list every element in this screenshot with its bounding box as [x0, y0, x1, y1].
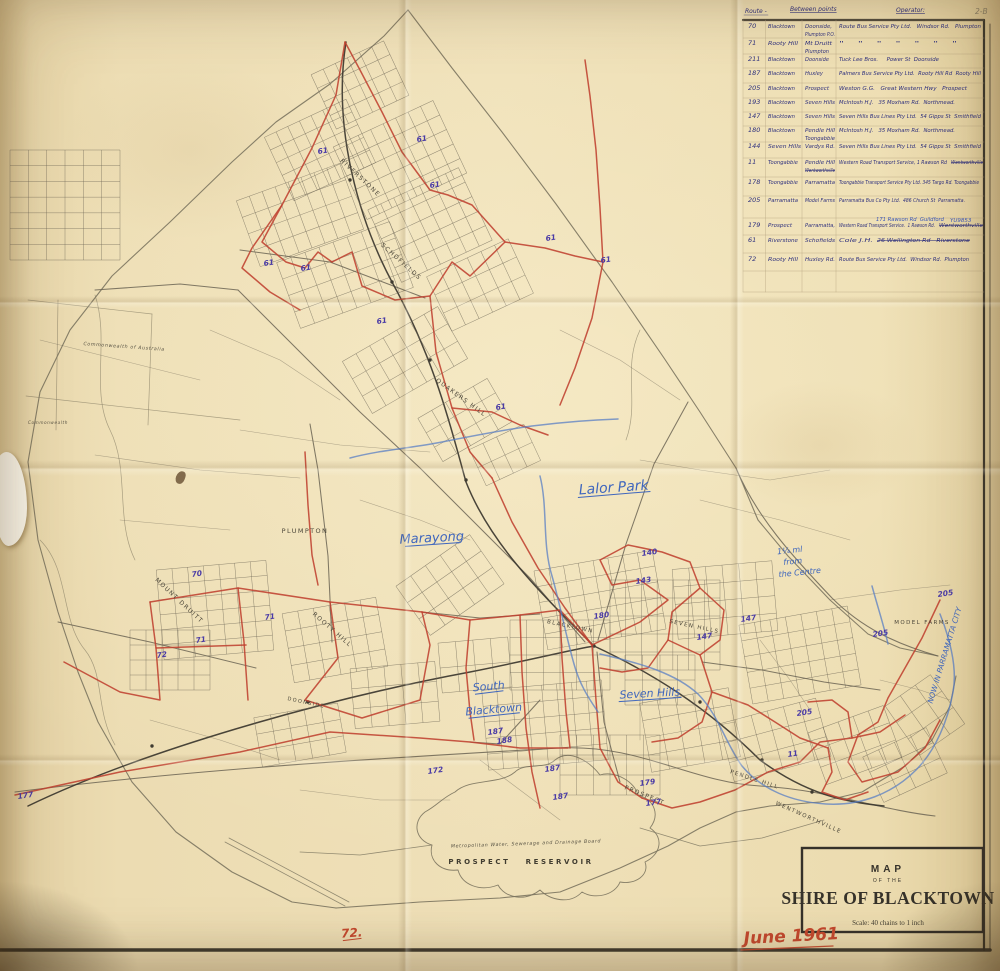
railway-station-dot [150, 744, 153, 747]
street-line [355, 721, 440, 728]
street-line [433, 101, 467, 174]
street-line [411, 576, 445, 625]
map-line [640, 820, 824, 846]
route-to-cell: Seven Hills [805, 114, 835, 120]
route-to-cell: Prospect [805, 86, 830, 92]
route-number-text: 11 [787, 749, 799, 759]
route-number-text: 61 [300, 263, 312, 273]
map-line [300, 790, 450, 800]
street-line [418, 418, 443, 461]
route-to-cell: Model Farms [805, 198, 835, 204]
route-number-mark: 11 [787, 749, 799, 759]
route-to-cell: Doonside, [805, 24, 832, 30]
street-line [163, 635, 273, 645]
route-number-mark: 188 [496, 735, 513, 746]
street-line [458, 168, 492, 241]
map-line [262, 42, 345, 268]
street-grid [396, 535, 504, 636]
street-line [162, 620, 272, 630]
street-line [744, 638, 852, 657]
street-line [425, 566, 459, 615]
street-line [301, 287, 414, 328]
handwritten-label-lalor-park: Lalor Park [577, 477, 651, 498]
street-grid [739, 606, 861, 704]
route-to-cell: Doonside [805, 57, 830, 63]
route-from-cell: Blacktown [768, 71, 795, 77]
map-line [95, 455, 300, 478]
route-number-text: 177 [17, 790, 35, 801]
street-line [350, 669, 355, 729]
route-number-text: 180 [593, 610, 610, 621]
street-line [926, 728, 947, 773]
street-line [407, 551, 481, 603]
street-line [372, 358, 467, 413]
handwritten-label-red-72: 72. [341, 925, 363, 940]
street-line [333, 242, 357, 308]
street-line [678, 631, 778, 640]
route-to-cell: Parramatta, [805, 223, 835, 229]
route-number-mark: 61 [300, 263, 312, 273]
street-line [335, 63, 360, 117]
handwritten-label-text: Lalor Park [578, 478, 650, 499]
route-number-cell: 147 [748, 112, 761, 120]
handwritten-label-centre-note-3: the Centre [778, 566, 821, 579]
railway-station-dot [464, 478, 467, 481]
street-line [418, 663, 423, 723]
street-line [262, 192, 286, 258]
handwritten-label-text: 1¼ ml [777, 545, 804, 557]
map-line [95, 284, 238, 290]
street-line [868, 711, 887, 763]
street-line [360, 600, 372, 669]
street-line [342, 362, 372, 414]
street-line [640, 703, 652, 772]
map-label-model-farms: MODEL FARMS [894, 620, 949, 626]
map-line [28, 10, 408, 908]
route-number-cell: 179 [748, 221, 760, 229]
street-line [314, 173, 338, 239]
route-to-cell: Schofields [805, 238, 835, 244]
street-line [260, 229, 363, 267]
route-operator-cell: Western Road Transport Service, 1 Rawson… [839, 160, 947, 166]
street-line [433, 180, 467, 253]
street-line [420, 186, 454, 259]
street-line [327, 168, 351, 234]
route-from-cell: Rooty Hill [768, 41, 799, 47]
map-line [598, 402, 688, 640]
route-number-mark: 70 [191, 569, 203, 579]
route-to-cell-2: Toongabbie [805, 136, 835, 142]
street-line [883, 705, 902, 757]
street-grid [482, 680, 609, 770]
route-number-mark: 61 [545, 233, 557, 243]
street-line [287, 712, 296, 761]
map-line [210, 330, 340, 400]
street-line [443, 422, 512, 462]
street-line [481, 251, 506, 305]
map-line [560, 330, 680, 400]
route-operator-cell: " " " " " " " [839, 41, 958, 47]
street-line [304, 709, 313, 758]
route-to-cell: Pendle Hill [805, 128, 836, 134]
street-line [401, 664, 406, 724]
route-number-cell: 205 [748, 84, 760, 92]
street-line [586, 681, 593, 761]
map-label-plumpton: PLUMPTON [282, 527, 329, 535]
route-number-mark: 72 [156, 650, 168, 660]
title-scale: Scale: 40 chains to 1 inch [852, 919, 924, 927]
map-line [120, 520, 230, 530]
street-line [430, 584, 504, 636]
route-number-mark: 61 [600, 255, 612, 265]
table-header-operator: Operator: [896, 7, 925, 14]
route-from-cell: Prospect [768, 223, 793, 229]
street-line [396, 118, 430, 191]
street-line [510, 431, 527, 467]
street-line [277, 263, 301, 329]
street-line [753, 685, 861, 704]
route-number-mark: 172 [427, 765, 444, 776]
handwritten-label-text: from [783, 556, 803, 567]
street-line [816, 612, 830, 691]
route-to-cell: Mt Druitt [805, 41, 833, 47]
route-number-cell: 211 [748, 55, 760, 63]
route-number-mark: 61 [376, 316, 388, 326]
route-operator-cell: Route Bus Service Pty Ltd. Windsor Rd. P… [839, 24, 981, 30]
map-label-commonwealth-2: Commonwealth [28, 420, 68, 425]
route-to-cell: Pendle Hill [805, 160, 836, 166]
route-from-cell: Riverstone [768, 238, 799, 244]
street-line [542, 685, 549, 765]
route-number-text: 147 [696, 631, 714, 642]
route-from-cell: Toongabbie [768, 180, 799, 186]
street-line [236, 163, 339, 201]
route-number-text: 61 [317, 146, 329, 156]
map-label-prospect-reservoir: PROSPECT RESERVOIR [448, 858, 593, 866]
route-operator-cell: Toongabbie Transport Service Pty Ltd. 34… [839, 180, 979, 186]
street-line [276, 125, 358, 163]
route-number-text: 71 [264, 612, 276, 622]
street-line [657, 700, 669, 769]
route-number-mark: 147 [696, 631, 714, 642]
route-operator-cell: Route Bus Service Pty Ltd. Windsor Rd. P… [839, 257, 969, 263]
street-line [623, 555, 637, 634]
street-line [801, 614, 815, 693]
street-line [384, 666, 389, 726]
scanned-map-sheet: Route -Between pointsOperator:70Blacktow… [0, 0, 1000, 971]
route-number-text: 61 [495, 402, 507, 412]
title-main: SHIRE OF BLACKTOWN [781, 888, 994, 908]
route-number-mark: 61 [429, 180, 441, 190]
map-line [848, 600, 940, 782]
map-line [229, 838, 349, 902]
map-line [736, 468, 938, 656]
route-number-mark: 205 [937, 588, 954, 599]
map-line [600, 614, 954, 804]
handwritten-label-seven-hills-hw: Seven Hills [618, 685, 682, 701]
street-line [440, 270, 465, 324]
map-line [342, 42, 594, 646]
street-line [277, 222, 390, 263]
map-line [430, 296, 492, 478]
street-line [455, 545, 489, 594]
street-line [356, 354, 386, 406]
route-from-cell: Blacktown [768, 100, 795, 106]
street-line [298, 611, 310, 680]
street-line [370, 346, 400, 398]
table-header-route: Route - [745, 8, 767, 15]
street-line [368, 168, 459, 210]
route-number-cell: 205 [748, 196, 760, 204]
route-number-mark: 180 [593, 610, 610, 621]
street-line [512, 688, 519, 768]
route-from-cell: Rooty Hill [768, 257, 799, 263]
route-from-cell: Blacktown [768, 114, 795, 120]
route-to-cell-2: Plumpton P.O. [805, 32, 835, 38]
street-line [350, 661, 435, 668]
route-operator-cell: Parramatta Bus Co Pty Ltd. 486 Church St… [839, 198, 965, 204]
map-line [305, 452, 318, 585]
route-number-text: 172 [427, 765, 444, 776]
street-line [375, 182, 466, 224]
map-label-commonwealth: Commonwealth of Australia [83, 341, 165, 353]
handwritten-label-centre-note-2: from [783, 556, 803, 567]
handwritten-label-text: South [472, 679, 505, 695]
route-number-text: 71 [195, 635, 207, 645]
route-from-cell: Parramatta [768, 198, 798, 204]
route-number-cell: 193 [748, 98, 760, 106]
route-number-cell: 180 [748, 126, 760, 134]
route-operator-cell: Seven Hills Bus Lines Pty Ltd. 54 Gipps … [839, 114, 981, 120]
route-to-cell-2: Wentworthville [805, 168, 835, 174]
street-line [601, 680, 608, 760]
street-line [319, 247, 343, 313]
map-canvas: Route -Between pointsOperator:70Blacktow… [0, 0, 1000, 971]
route-operator-struck: 26 Wellington Rd Riverstone [877, 238, 970, 244]
street-line [271, 715, 280, 764]
route-operator-cell: McIntosh H.J. 35 Moxham Rd. Northmead. [839, 128, 955, 134]
table-header-between: Between points [790, 6, 837, 13]
railway-station-dot [698, 700, 701, 703]
map-line [417, 755, 659, 899]
street-line [383, 338, 413, 390]
map-label-wentworthville: WENTWORTHVILLE [774, 801, 842, 836]
route-to-cell: Huxley Rd. [805, 257, 835, 263]
street-line [742, 622, 850, 641]
street-line [438, 307, 468, 359]
street-line [785, 617, 799, 696]
street-grid [427, 239, 534, 331]
street-grid [333, 101, 467, 220]
route-number-text: 72 [156, 650, 168, 660]
map-label-text: PLUMPTON [282, 527, 329, 535]
route-to-cell: Huxley [805, 71, 824, 77]
map-label-text: PENDLE HILL [729, 769, 779, 790]
sheet-corner-note: 2-B [975, 7, 988, 16]
map-label-text: Metropolitan Water, Sewerage and Drainag… [451, 838, 602, 849]
street-line [381, 197, 472, 239]
street-grid [156, 560, 273, 659]
map-label-text: Commonwealth [28, 420, 68, 425]
route-operator-cell: Weston G.G. Great Western Hwy Prospect [839, 86, 968, 92]
street-line [885, 706, 919, 755]
route-operator-cell: McIntosh H.J. 35 Moxham Rd. Northmead. [839, 100, 955, 106]
street-grid [277, 222, 414, 329]
street-grid [254, 703, 346, 767]
map-line [830, 585, 950, 600]
street-line [593, 561, 607, 640]
route-operator-cell: Seven Hills Bus Lines Pty Ltd. 54 Gipps … [839, 144, 981, 150]
route-number-text: 205 [796, 707, 813, 718]
street-line [254, 718, 263, 767]
route-number-text: 61 [263, 258, 275, 268]
street-line [367, 667, 372, 727]
street-line [770, 620, 784, 699]
handwritten-label-centre-note-1: 1¼ ml [777, 545, 804, 557]
route-number-mark: 177 [17, 790, 35, 801]
route-from-cell: Blacktown [768, 128, 795, 134]
route-number-text: 187 [544, 763, 562, 774]
map-line [702, 662, 880, 690]
street-line [282, 614, 294, 683]
route-number-text: 61 [545, 233, 557, 243]
route-number-mark: 177 [645, 797, 663, 808]
map-line [28, 300, 152, 314]
street-grid [236, 163, 363, 266]
title-map-word: MAP [871, 864, 905, 875]
route-to-cell: Parramatta [805, 180, 835, 186]
route-number-cell: 11 [748, 158, 756, 166]
route-number-cell: 61 [748, 236, 756, 244]
route-number-text: 61 [429, 180, 441, 190]
date-annotation: June 1961 [740, 924, 839, 949]
route-number-cell: 71 [748, 39, 756, 47]
street-line [160, 605, 270, 615]
street-line [264, 99, 346, 137]
route-number-text: 61 [376, 316, 388, 326]
route-operator-cell: Western Road Transport Service. 1 Rawson… [839, 223, 935, 229]
street-line [908, 707, 953, 739]
street-line [445, 174, 479, 247]
street-line [483, 443, 500, 479]
street-line [384, 41, 409, 95]
street-line [672, 561, 772, 570]
street-line [371, 47, 396, 101]
map-line [642, 715, 905, 808]
route-number-mark: 61 [416, 134, 428, 144]
map-line [238, 290, 585, 642]
route-number-mark: 71 [195, 635, 207, 645]
map-line [505, 242, 603, 262]
route-operator-cell: Tuck Lee Bros. Power St Doonside [839, 57, 940, 63]
map-label-pendle-hill: PENDLE HILL [729, 769, 779, 790]
street-line [750, 669, 858, 688]
title-of-the: OF THE [873, 878, 903, 884]
street-line [395, 226, 486, 268]
street-line [408, 112, 442, 185]
route-number-mark: 140 [641, 547, 658, 558]
map-line [238, 588, 248, 700]
route-number-cell: 70 [748, 22, 756, 30]
map-line [150, 720, 280, 760]
route-number-mark: 143 [635, 575, 652, 586]
street-line [863, 728, 926, 758]
street-line [164, 650, 274, 660]
route-operator-struck: Wentworthville [951, 160, 983, 166]
route-to-cell: Vardys Rd. [805, 144, 835, 150]
map-line [40, 540, 115, 745]
street-line [156, 560, 266, 570]
street-line [821, 740, 896, 767]
street-line [534, 571, 548, 650]
route-number-mark: 187 [552, 791, 570, 802]
street-line [754, 622, 768, 701]
route-number-mark: 71 [264, 612, 276, 622]
street-line [440, 555, 474, 604]
route-number-text: 188 [496, 735, 513, 746]
street-line [397, 330, 427, 382]
route-operator-cell: Palmers Bus Service Pty Ltd. Rooty Hill … [839, 71, 981, 77]
route-number-text: 143 [635, 575, 652, 586]
railway-station-dot [428, 358, 431, 361]
street-line [637, 553, 651, 632]
street-line [497, 437, 514, 473]
street-line [419, 567, 493, 619]
map-line [26, 396, 240, 420]
route-from-cell: Toongabbie [768, 160, 799, 166]
route-to-cell-2: Plumpton [805, 49, 829, 55]
route-from-cell: Blacktown [768, 57, 795, 63]
street-line [508, 239, 533, 293]
map-label-text: WENTWORTHVILLE [774, 801, 842, 836]
map-line [760, 640, 810, 710]
route-from-cell: Blacktown [768, 24, 795, 30]
street-line [739, 625, 753, 704]
street-line [288, 182, 312, 248]
street-line [158, 575, 268, 585]
route-from-cell: Seven Hills [768, 144, 801, 150]
street-line [424, 314, 454, 366]
street-line [407, 192, 441, 265]
map-label-water-board: Metropolitan Water, Sewerage and Drainag… [451, 838, 602, 849]
map-label-text: MODEL FARMS [894, 620, 949, 626]
route-number-mark: 205 [796, 707, 813, 718]
street-line [571, 683, 578, 763]
map-line [626, 330, 640, 440]
date-note-text: June 1961 [740, 924, 839, 949]
route-to-cell: Seven Hills [805, 100, 835, 106]
map-label-text: PROSPECT RESERVOIR [448, 858, 593, 866]
street-line [359, 52, 384, 106]
street-grid [418, 378, 512, 461]
route-number-text: 205 [937, 588, 954, 599]
street-line [495, 245, 520, 299]
route-number-text: 70 [191, 569, 203, 579]
handwritten-label-south: South [472, 679, 505, 695]
route-number-cell: 144 [748, 142, 760, 150]
street-line [808, 733, 827, 785]
street-line [832, 609, 846, 688]
map-line [225, 842, 345, 906]
street-line [747, 653, 855, 672]
street-line [751, 715, 767, 773]
railway-station-dot [390, 280, 393, 283]
street-line [358, 135, 392, 208]
route-number-text: 177 [645, 797, 663, 808]
map-line [466, 620, 474, 740]
map-line [736, 468, 938, 656]
map-line [95, 295, 135, 560]
